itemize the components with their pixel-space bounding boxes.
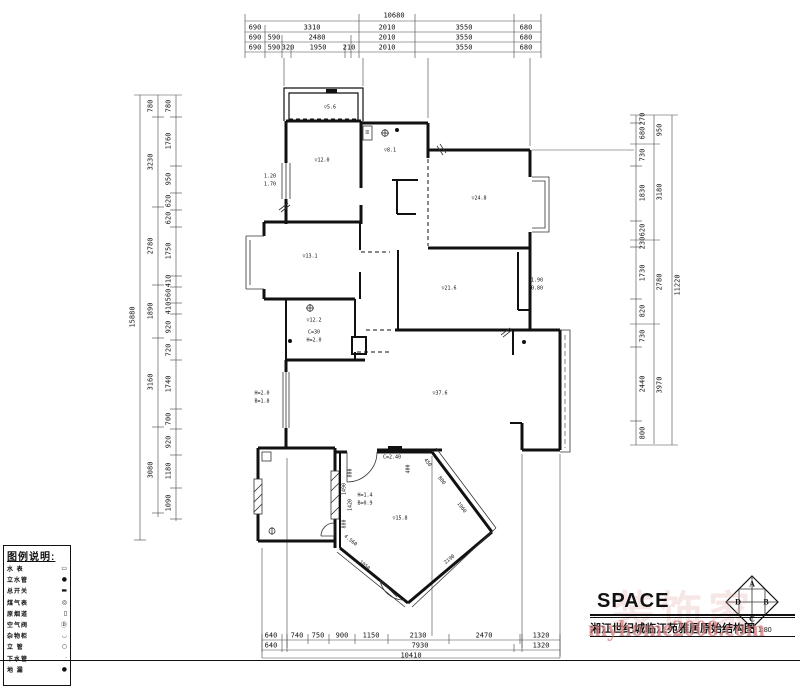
drain-symbol-icon [522, 340, 526, 344]
drawing-title-text: 湘江世纪城临江苑雅居原始结构图 [590, 623, 755, 635]
legend-item: 立 管○ [7, 641, 67, 652]
drain-symbol-icon [288, 339, 292, 343]
legend-title: 图例说明: [7, 548, 67, 563]
logo-letter-d: D [735, 598, 741, 607]
legend-item-symbol-icon: Ⓓ [61, 620, 67, 629]
legend-item-label: 煤气表 [7, 598, 28, 607]
logo-letter-b: B [763, 598, 768, 607]
sheet-bottom-border [0, 660, 800, 661]
brand-rule [590, 614, 795, 616]
legend-item-symbol-icon: ◎ [62, 599, 67, 606]
right-dimension-lines [532, 115, 678, 445]
legend-item-symbol-icon: ▬ [61, 587, 67, 594]
legend-item: 水 表▭ [7, 563, 67, 574]
legend-item-label: 总开关 [7, 586, 28, 595]
bottom-dimension-lines [262, 454, 560, 658]
walls [246, 88, 570, 607]
legend-item-symbol-icon: ● [62, 576, 67, 583]
legend-item-symbol-icon: ▯ [64, 610, 67, 617]
legend-item: 立水管● [7, 574, 67, 585]
legend-item: 空气阀Ⓓ [7, 619, 67, 630]
legend-item-label: 下水管 [7, 654, 28, 663]
legend-item-label: 地 漏 [7, 665, 24, 674]
legend-item-symbol-icon: ○ [62, 643, 67, 650]
logo-letter-a: A [749, 580, 755, 589]
legend-item-symbol-icon: ● [62, 666, 67, 673]
legend-item: 总开关▬ [7, 585, 67, 596]
floorplan-canvas [0, 0, 800, 686]
legend-box: 图例说明: 水 表▭立水管●总开关▬煤气表◎原烟道▯空气阀Ⓓ杂物柜◡立 管○下水… [3, 545, 71, 686]
legend-item-label: 杂物柜 [7, 631, 28, 640]
brand-logo-text: SPACE [597, 590, 669, 613]
plan-symbols [279, 128, 526, 344]
legend-item: 杂物柜◡ [7, 630, 67, 641]
drawing-sheet: 1068069033102010355068069059024802010355… [0, 0, 800, 686]
brand-rule-thin [590, 617, 795, 618]
legend-item-label: 立水管 [7, 575, 28, 584]
top-dimension-lines [245, 14, 541, 146]
legend-item-symbol-icon: ◡ [62, 632, 67, 639]
legend-item-label: 原烟道 [7, 609, 28, 618]
legend-item: 煤气表◎ [7, 597, 67, 608]
logo-letter-c: C [749, 615, 755, 624]
title-rule [590, 636, 795, 637]
legend-item-symbol-icon: ▭ [61, 565, 67, 572]
drawing-title: 湘江世纪城临江苑雅居原始结构图1:80 [590, 620, 800, 636]
legend-item: 地 漏● [7, 664, 67, 675]
legend-item: 下水管· [7, 653, 67, 664]
drain-symbol-icon [395, 128, 399, 132]
legend-item-label: 立 管 [7, 642, 24, 651]
drawing-scale: 1:80 [758, 627, 772, 634]
legend-item-label: 空气阀 [7, 620, 28, 629]
legend-item-label: 水 表 [7, 564, 24, 573]
legend-item: 原烟道▯ [7, 608, 67, 619]
left-dimension-lines [134, 95, 182, 540]
legend-items: 水 表▭立水管●总开关▬煤气表◎原烟道▯空气阀Ⓓ杂物柜◡立 管○下水管·地 漏● [7, 563, 67, 675]
